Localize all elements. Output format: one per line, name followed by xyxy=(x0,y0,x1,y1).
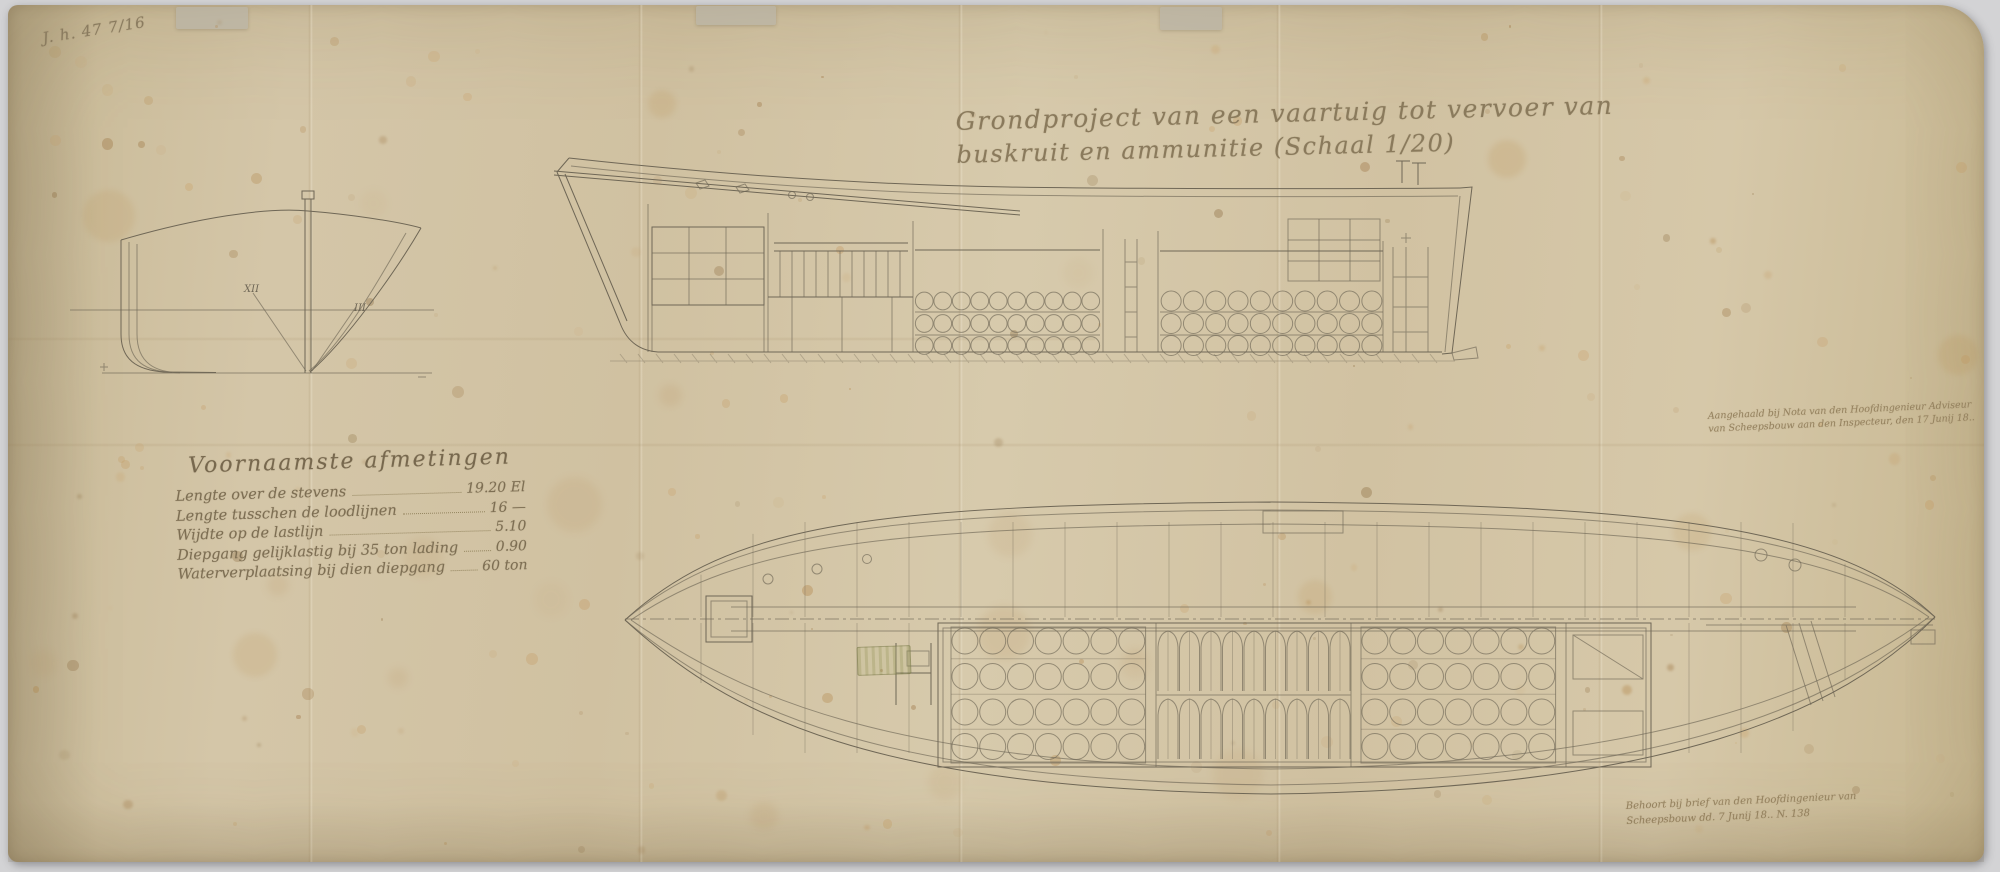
foxing-spot xyxy=(1710,238,1715,243)
foxing-spot xyxy=(102,84,113,95)
foxing-spot xyxy=(1509,25,1511,27)
foxing-spot xyxy=(1211,45,1220,54)
stain xyxy=(30,650,57,677)
foxing-spot xyxy=(1634,284,1640,290)
frame-label-right: III xyxy=(353,303,367,314)
foxing-spot xyxy=(689,66,695,72)
barrel-stack-forward xyxy=(915,250,1100,354)
frame-label-left: XII xyxy=(243,284,260,295)
dimension-value: 60 ton xyxy=(482,557,528,574)
deck-beam-lines xyxy=(701,522,1845,753)
dimension-value: 0.90 xyxy=(496,538,528,555)
dimension-leader xyxy=(403,511,485,514)
foxing-spot xyxy=(1408,424,1413,429)
foxing-spot xyxy=(512,760,519,767)
foxing-spot xyxy=(1673,407,1679,413)
scan-background: J. h. 47 7/16 Grondproject van een vaart… xyxy=(0,0,2000,872)
stain xyxy=(233,633,277,677)
principal-dimensions: Voornaamste afmetingen Lengte over de st… xyxy=(174,444,527,583)
foxing-spot xyxy=(526,653,538,665)
foxing-spot xyxy=(1956,162,1967,173)
foxing-spot xyxy=(59,750,70,761)
fold-crease xyxy=(308,5,313,862)
foxing-spot xyxy=(1506,344,1511,349)
side-view-drawing xyxy=(540,147,1490,379)
foxing-spot xyxy=(1266,830,1272,836)
foxing-spot xyxy=(351,728,360,737)
foxing-spot xyxy=(300,126,307,133)
hull-plan-outline xyxy=(625,502,1935,794)
foxing-spot xyxy=(201,405,206,410)
foxing-spot xyxy=(406,76,417,87)
foxing-spot xyxy=(475,49,480,54)
bulkheads xyxy=(648,204,1383,352)
foxing-spot xyxy=(1764,271,1772,279)
title-line-1: Grondproject van een vaartuig tot vervoe… xyxy=(955,95,1436,136)
dimension-label: Wijdte op de lastlijn xyxy=(176,524,323,544)
tiller-lines xyxy=(1706,621,1935,705)
foxing-spot xyxy=(1620,191,1630,201)
foxing-spot xyxy=(463,93,472,102)
foxing-spot xyxy=(1074,75,1078,79)
foxing-spot xyxy=(849,388,851,390)
foxing-spot xyxy=(1481,33,1488,40)
dimension-leader xyxy=(464,550,491,552)
dimension-value: 16 — xyxy=(489,499,526,516)
foxing-spot xyxy=(1587,393,1595,401)
hull-section xyxy=(100,191,426,377)
foxing-spot xyxy=(579,599,590,610)
stamp xyxy=(857,645,912,676)
foxing-spot xyxy=(1889,453,1900,464)
foxing-spot xyxy=(140,466,144,470)
foxing-spot xyxy=(738,129,745,136)
foxing-spot xyxy=(118,456,125,463)
fold-crease xyxy=(8,443,1984,447)
foxing-spot xyxy=(578,846,585,853)
foxing-spot xyxy=(1752,193,1754,195)
tape-remnant xyxy=(176,7,248,29)
foxing-spot xyxy=(428,51,439,62)
foxing-spot xyxy=(1910,377,1912,379)
foxing-spot xyxy=(75,56,87,68)
foxing-spot xyxy=(1045,31,1047,33)
foxing-spot xyxy=(121,460,130,469)
foxing-spot xyxy=(233,822,237,826)
foxing-spot xyxy=(116,472,125,481)
aft-rack xyxy=(1393,233,1428,352)
deck-bitts xyxy=(1396,161,1426,185)
stain xyxy=(1938,335,1978,375)
foxing-spot xyxy=(1663,234,1670,241)
stain xyxy=(648,90,676,118)
tape-remnant xyxy=(1160,7,1222,30)
aft-shelf-boxes xyxy=(1288,219,1380,281)
foxing-spot xyxy=(1930,475,1936,481)
foxing-spot xyxy=(489,650,497,658)
foxing-spot xyxy=(398,728,404,734)
foxing-spot xyxy=(144,96,153,105)
foxing-spot xyxy=(77,494,82,499)
foxing-spot xyxy=(330,37,339,46)
foxing-spot xyxy=(821,76,824,79)
aft-compartment xyxy=(1566,623,1643,767)
stain xyxy=(547,477,602,532)
drawing-sheet: J. h. 47 7/16 Grondproject van een vaart… xyxy=(8,5,1984,862)
archival-mark: J. h. 47 7/16 xyxy=(41,13,147,47)
foxing-spot xyxy=(296,715,301,720)
foxing-spot xyxy=(1639,63,1644,68)
pump-well xyxy=(1125,239,1137,352)
foxing-spot xyxy=(493,266,497,270)
foxing-spot xyxy=(123,800,132,809)
annotation-right: Aangehaald bij Nota van den Hoofdingenie… xyxy=(1708,398,1976,436)
foxing-spot xyxy=(72,613,78,619)
foxing-spot xyxy=(1643,77,1650,84)
foxing-spot xyxy=(52,192,57,197)
foxing-spot xyxy=(257,743,261,747)
foxing-spot xyxy=(33,686,40,693)
dimension-label: Lengte over de stevens xyxy=(175,484,346,505)
hull-profile xyxy=(557,158,1478,360)
foxing-spot xyxy=(1716,247,1722,253)
foxing-spot xyxy=(722,399,731,408)
bow-locker-grid xyxy=(652,227,764,352)
dimension-value: 5.10 xyxy=(495,518,527,535)
foxing-spot xyxy=(579,711,583,715)
dimension-value: 19.20 El xyxy=(466,479,526,497)
foxing-spot xyxy=(864,825,870,831)
deck-fittings xyxy=(763,511,1801,584)
stain xyxy=(659,384,682,407)
foxing-spot xyxy=(757,102,762,107)
foxing-spot xyxy=(1695,825,1703,833)
foxing-spot xyxy=(1961,355,1970,364)
dimensions-heading: Voornaamste afmetingen xyxy=(174,444,525,479)
barrel-grid-forward xyxy=(951,627,1146,763)
foxing-spot xyxy=(452,386,464,398)
foxing-spot xyxy=(1741,303,1751,313)
foxing-spot xyxy=(67,660,79,672)
foxing-spot xyxy=(357,725,366,734)
foxing-spot xyxy=(381,618,383,620)
foxing-spot xyxy=(444,842,447,845)
barrel-grid-aft xyxy=(1361,627,1556,763)
foxing-spot xyxy=(780,394,788,402)
foxing-spot xyxy=(1722,308,1731,317)
foxing-spot xyxy=(242,716,247,721)
plan-view-drawing xyxy=(611,483,1956,823)
powder-case-arches xyxy=(1156,623,1351,767)
stain xyxy=(534,582,569,617)
stain xyxy=(1488,140,1526,178)
foxing-spot xyxy=(50,135,61,146)
tape-remnant xyxy=(696,6,776,25)
cross-section-drawing: XII III xyxy=(66,141,438,393)
foxing-spot xyxy=(1539,345,1545,351)
dimension-leader xyxy=(329,530,490,535)
dimension-leader xyxy=(451,569,477,571)
foxing-spot xyxy=(1619,156,1625,162)
foxing-spot xyxy=(108,606,112,610)
stanchion-row xyxy=(768,243,913,352)
stain xyxy=(388,668,408,688)
foxing-spot xyxy=(1578,350,1589,361)
dimension-leader xyxy=(352,492,461,496)
foxing-spot xyxy=(49,46,61,58)
foxing-spot xyxy=(1817,337,1827,347)
foxing-spot xyxy=(348,434,357,443)
foxing-spot xyxy=(1839,64,1846,71)
dimension-label: Lengte tusschen de loodlijnen xyxy=(176,502,397,524)
foxing-spot xyxy=(1247,411,1256,420)
